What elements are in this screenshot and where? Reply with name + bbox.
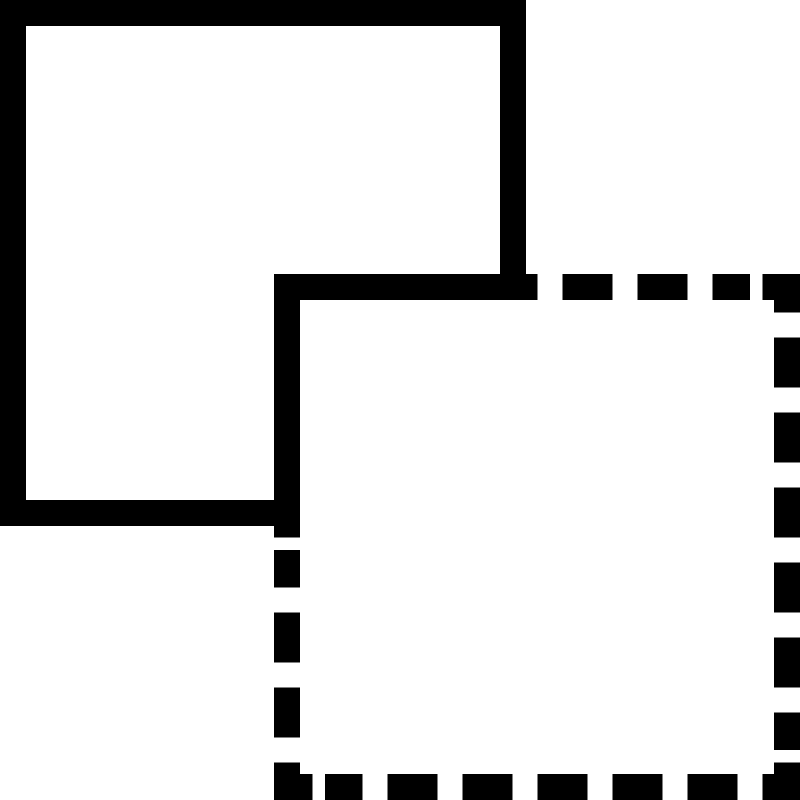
dashed-square-fill bbox=[274, 274, 800, 800]
dashed-square-bottom-dash-1 bbox=[688, 774, 738, 800]
dashed-square-bottom-dash-6 bbox=[325, 774, 363, 800]
dashed-square-right-dash-5 bbox=[774, 638, 800, 688]
dashed-square-top-right-corner-vertical bbox=[774, 274, 800, 313]
dashed-square-left-dash-1 bbox=[274, 550, 300, 588]
dashed-square-right-dash-2 bbox=[774, 413, 800, 463]
dashed-square-bottom-dash-2 bbox=[613, 774, 663, 800]
dashed-square-right-dash-1 bbox=[774, 338, 800, 388]
dashed-square-right-dash-4 bbox=[774, 563, 800, 613]
dashed-square-right-dash-6 bbox=[774, 713, 800, 751]
solid-square-top-bar bbox=[0, 0, 526, 26]
dashed-square-bottom-left-corner-vertical bbox=[274, 763, 300, 800]
dashed-square-top-dash-2 bbox=[638, 274, 688, 300]
solid-square-left-bar bbox=[0, 0, 26, 526]
overlap-squares-icon bbox=[0, 0, 800, 800]
dashed-square-left-dash-2 bbox=[274, 613, 300, 663]
dashed-square-bottom-dash-4 bbox=[463, 774, 513, 800]
dashed-square-bottom-right-corner-horizontal bbox=[763, 774, 800, 800]
dashed-square-overlap-corner-solid-horizontal bbox=[274, 274, 538, 300]
dashed-square-top-dash-1 bbox=[563, 274, 613, 300]
dashed-square bbox=[274, 274, 800, 800]
dashed-square-right-dash-3 bbox=[774, 488, 800, 538]
dashed-square-left-dash-3 bbox=[274, 688, 300, 738]
dashed-square-top-dash-3 bbox=[713, 274, 751, 300]
dashed-square-bottom-dash-3 bbox=[538, 774, 588, 800]
dashed-square-overlap-corner-solid-vertical bbox=[274, 274, 300, 538]
icon-canvas bbox=[0, 0, 800, 800]
dashed-square-bottom-dash-5 bbox=[388, 774, 438, 800]
